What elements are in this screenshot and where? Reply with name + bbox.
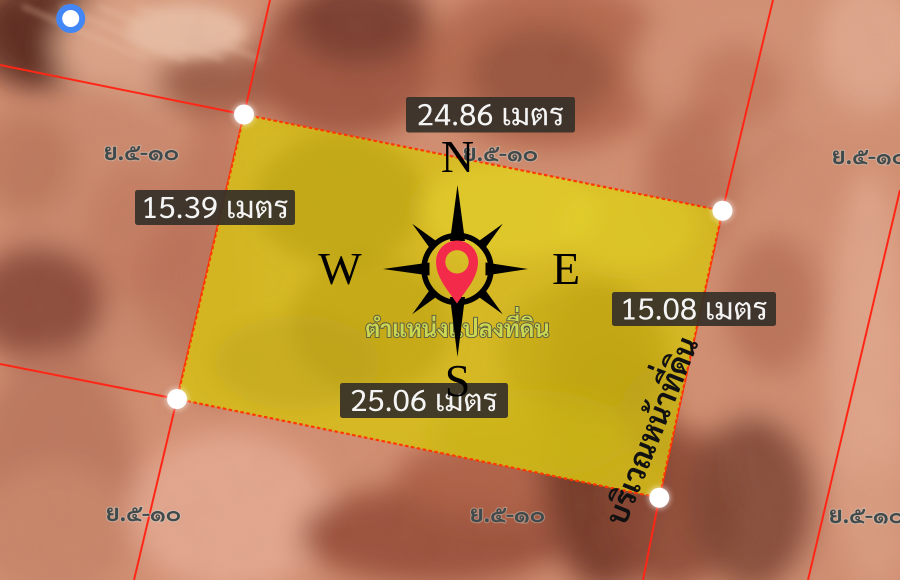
- svg-text:N: N: [441, 131, 474, 182]
- svg-text:E: E: [552, 243, 580, 294]
- svg-text:S: S: [445, 355, 471, 406]
- svg-text:W: W: [318, 243, 362, 294]
